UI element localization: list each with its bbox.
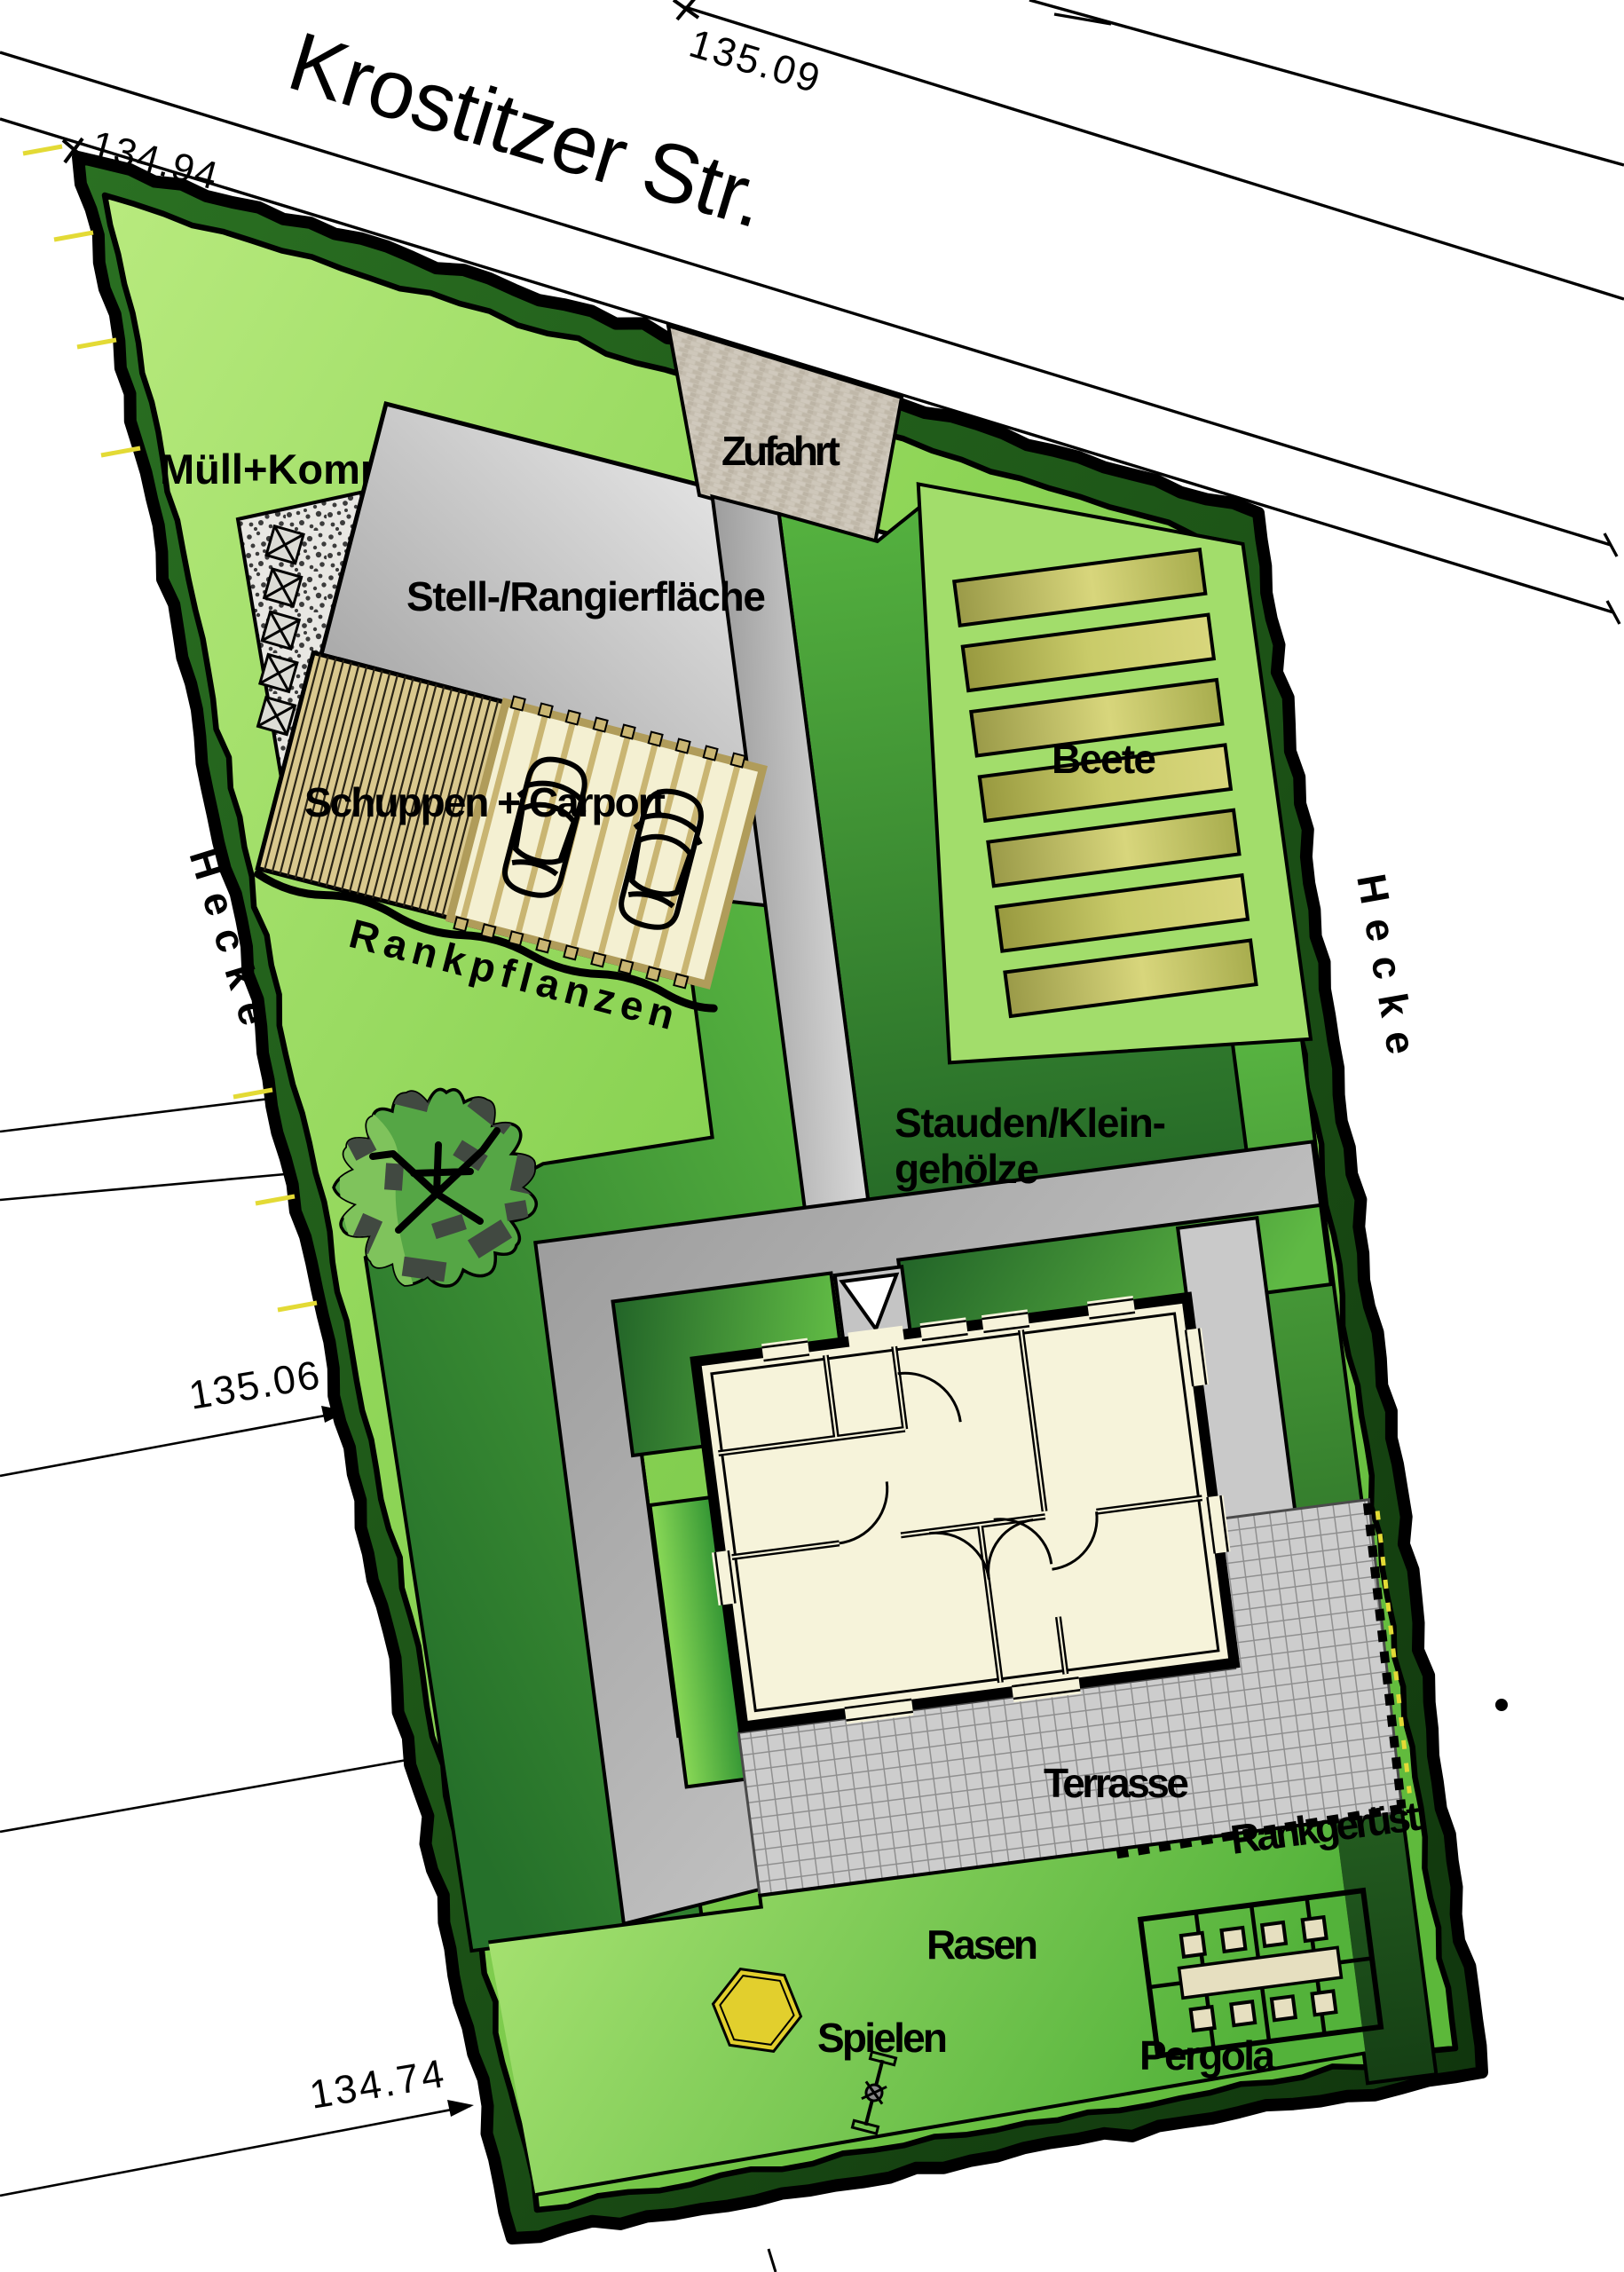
svg-text:Zufahrt: Zufahrt — [721, 428, 840, 474]
svg-text:Pergola: Pergola — [1139, 2032, 1275, 2079]
svg-text:Stauden/Klein-: Stauden/Klein- — [895, 1100, 1166, 1146]
svg-text:Schuppen + Carport: Schuppen + Carport — [304, 779, 666, 825]
svg-text:Rasen: Rasen — [926, 1921, 1038, 1968]
svg-text:Terrasse: Terrasse — [1044, 1760, 1189, 1806]
svg-text:gehölze: gehölze — [895, 1146, 1039, 1192]
svg-text:Stell-/Rangierfläche: Stell-/Rangierfläche — [406, 573, 766, 619]
svg-text:Beete: Beete — [1052, 736, 1156, 782]
svg-text:Spielen: Spielen — [817, 2015, 948, 2061]
